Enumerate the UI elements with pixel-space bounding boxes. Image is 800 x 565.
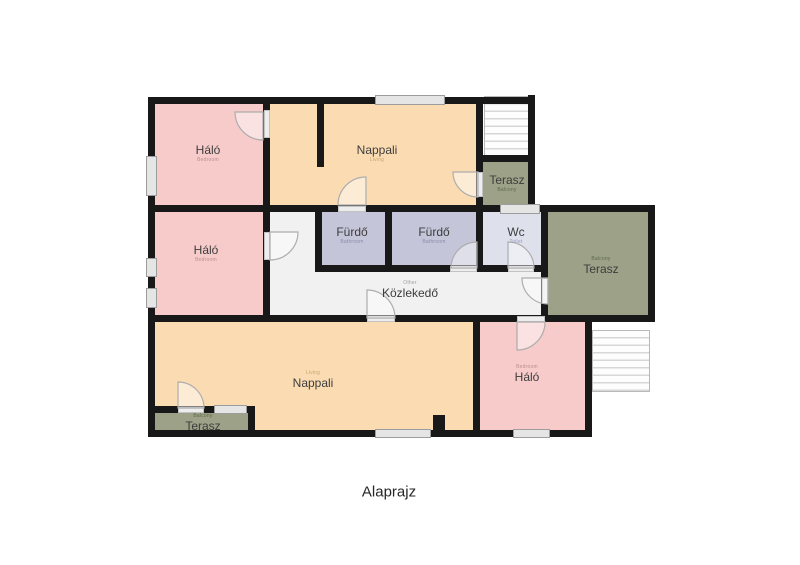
room-name: Nappali — [357, 143, 398, 157]
wall-bathroom1-left — [315, 205, 322, 272]
room-name: Terasz — [583, 262, 618, 276]
room-name: Háló — [515, 370, 540, 384]
door-gap-bedroom-ml — [264, 232, 270, 260]
window-bedroom-br — [513, 429, 550, 438]
label-toilet: Wc Toilet — [507, 225, 524, 245]
room-name: Háló — [194, 243, 219, 257]
room-type: Bedroom — [195, 257, 217, 263]
door-gap-bathroom-1 — [338, 206, 366, 212]
wall-toilet-right — [541, 205, 548, 322]
window-bedroom-ml-1 — [146, 258, 157, 277]
window-bedroom-tl — [146, 156, 157, 196]
wall-under-stairs — [476, 155, 535, 162]
window-toilet-top — [500, 204, 540, 214]
floorplan-canvas: Háló Bedroom Nappali Living Terasz Balco… — [0, 0, 800, 565]
room-name: Nappali — [293, 376, 334, 390]
label-balcony-right: Terasz Balcony — [583, 256, 618, 276]
room-type: Bathroom — [340, 239, 363, 245]
room-type: Bedroom — [197, 157, 219, 163]
room-type: Bathroom — [422, 239, 445, 245]
wall-bottom-stub — [433, 415, 445, 437]
door-gap-toilet — [508, 266, 534, 272]
label-living-top: Nappali Living — [357, 143, 398, 163]
label-bedroom-middle-left: Háló Bedroom — [194, 243, 219, 263]
wall-right-middle — [648, 205, 655, 322]
wall-horizontal-upper — [148, 205, 655, 212]
wall-stairs-right — [528, 95, 535, 212]
door-gap-bathroom-2 — [450, 266, 477, 272]
room-bedroom-middle-left — [152, 209, 267, 318]
label-bathroom-2: Fürdő Bathroom — [418, 225, 449, 245]
room-name: Fürdő — [418, 225, 449, 239]
room-type: Living — [370, 157, 384, 163]
room-name: Fürdő — [336, 225, 367, 239]
room-name: Wc — [507, 225, 524, 239]
wall-living-bedroom-divider — [473, 322, 480, 437]
label-balcony-bottom-left: Terasz Balcony — [185, 413, 220, 433]
door-gap-bedroom-tl — [264, 110, 270, 138]
window-living-bottom — [375, 429, 431, 438]
room-name: Háló — [196, 143, 221, 157]
label-bedroom-bottom-right: Háló Bedroom — [515, 364, 540, 384]
window-living-top — [375, 95, 445, 105]
stairs-bottom-right — [592, 330, 650, 392]
door-gap-balcony-tr — [477, 172, 483, 197]
door-gap-bedroom-br — [517, 316, 545, 322]
room-type: Balcony — [497, 187, 516, 193]
label-hallway: Közlekedő Other — [382, 280, 438, 300]
wall-bathrooms-divider — [385, 205, 392, 272]
room-name: Terasz — [185, 419, 220, 433]
wall-balcony-bl-right — [248, 406, 255, 437]
label-living-bottom: Nappali Living — [293, 370, 334, 390]
window-bedroom-ml-2 — [146, 288, 157, 308]
label-bathroom-1: Fürdő Bathroom — [336, 225, 367, 245]
plan-title: Alaprajz — [362, 484, 416, 501]
wall-right-bottom — [585, 322, 592, 437]
room-name: Terasz — [489, 173, 524, 187]
wall-horizontal-lower — [148, 315, 655, 322]
door-gap-balcony-right — [542, 278, 548, 304]
door-gap-living-bottom — [367, 316, 395, 322]
stairs-top-right — [484, 96, 529, 157]
label-bedroom-top-left: Háló Bedroom — [196, 143, 221, 163]
label-balcony-top-right: Terasz Balcony — [489, 173, 524, 193]
room-name: Közlekedő — [382, 286, 438, 300]
room-type: Toilet — [510, 239, 523, 245]
wall-living-partial — [317, 97, 324, 167]
